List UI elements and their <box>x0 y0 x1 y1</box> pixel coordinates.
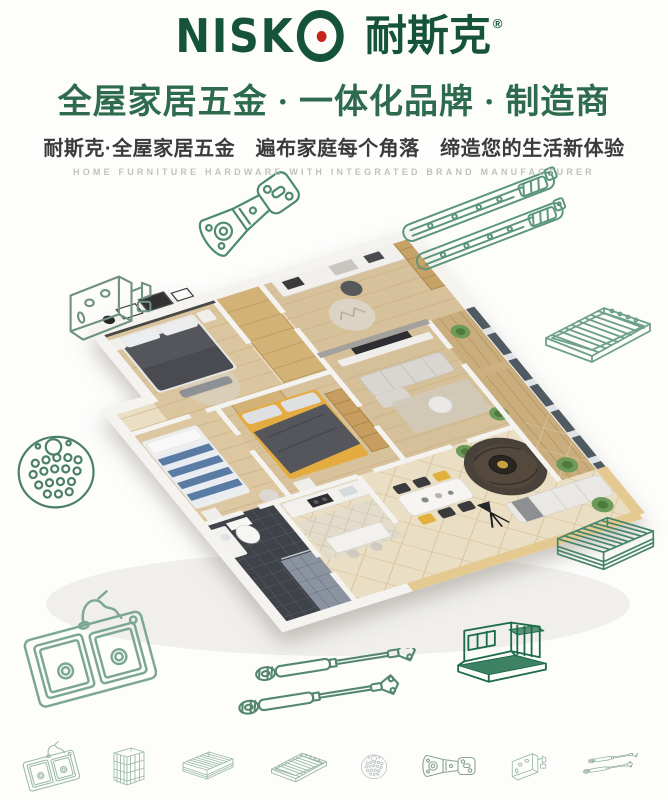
wire-shelf-icon <box>267 748 331 785</box>
corner-bracket-icon <box>507 750 551 782</box>
sub-headline: 耐斯克·全屋家居五金 遍布家庭每个角落 缔造您的生活新体验 <box>0 132 668 161</box>
brand-logo-latin: NISK O <box>175 9 344 63</box>
perforated-plate-icon <box>359 752 389 781</box>
isometric-apartment-cutaway-render <box>0 196 668 696</box>
main-headline: 全屋家居五金 · 一体化品牌 · 制造商 <box>0 74 668 123</box>
registered-mark: ® <box>493 16 503 31</box>
logo-o-mark: O <box>297 10 344 62</box>
footer-icon-corner-bracket <box>507 750 551 782</box>
english-tagline: HOME FURNITURE HARDWARE WITH INTEGRATED … <box>0 167 668 177</box>
gas-struts-icon <box>580 753 646 779</box>
footer-icon-wire-shelf <box>267 748 331 785</box>
brand-logo-chinese: 耐斯克® <box>365 15 503 57</box>
pull-out-basket-icon <box>109 743 149 789</box>
header: NISK O 耐斯克® 全屋家居五金 · 一体化品牌 · 制造商 耐斯克·全屋家… <box>0 0 668 177</box>
double-sink-icon <box>22 740 80 793</box>
footer-icon-gas-struts <box>580 753 646 779</box>
footer-icon-perforated-plate <box>359 752 389 781</box>
footer-icon-pull-out-basket <box>109 743 149 789</box>
brand-logo: NISK O 耐斯克® <box>0 10 668 62</box>
footer-icon-row <box>0 734 668 798</box>
cabinet-hinge-icon <box>418 750 478 782</box>
footer-icon-double-sink <box>22 740 80 793</box>
logo-red-dot-icon <box>316 31 326 42</box>
logo-text-nisk: NISK <box>175 9 294 63</box>
footer-icon-drawer-basket <box>178 749 238 783</box>
drawer-basket-icon <box>178 749 238 783</box>
poster: NISK O 耐斯克® 全屋家居五金 · 一体化品牌 · 制造商 耐斯克·全屋家… <box>0 0 668 800</box>
footer-icon-cabinet-hinge <box>418 750 478 782</box>
